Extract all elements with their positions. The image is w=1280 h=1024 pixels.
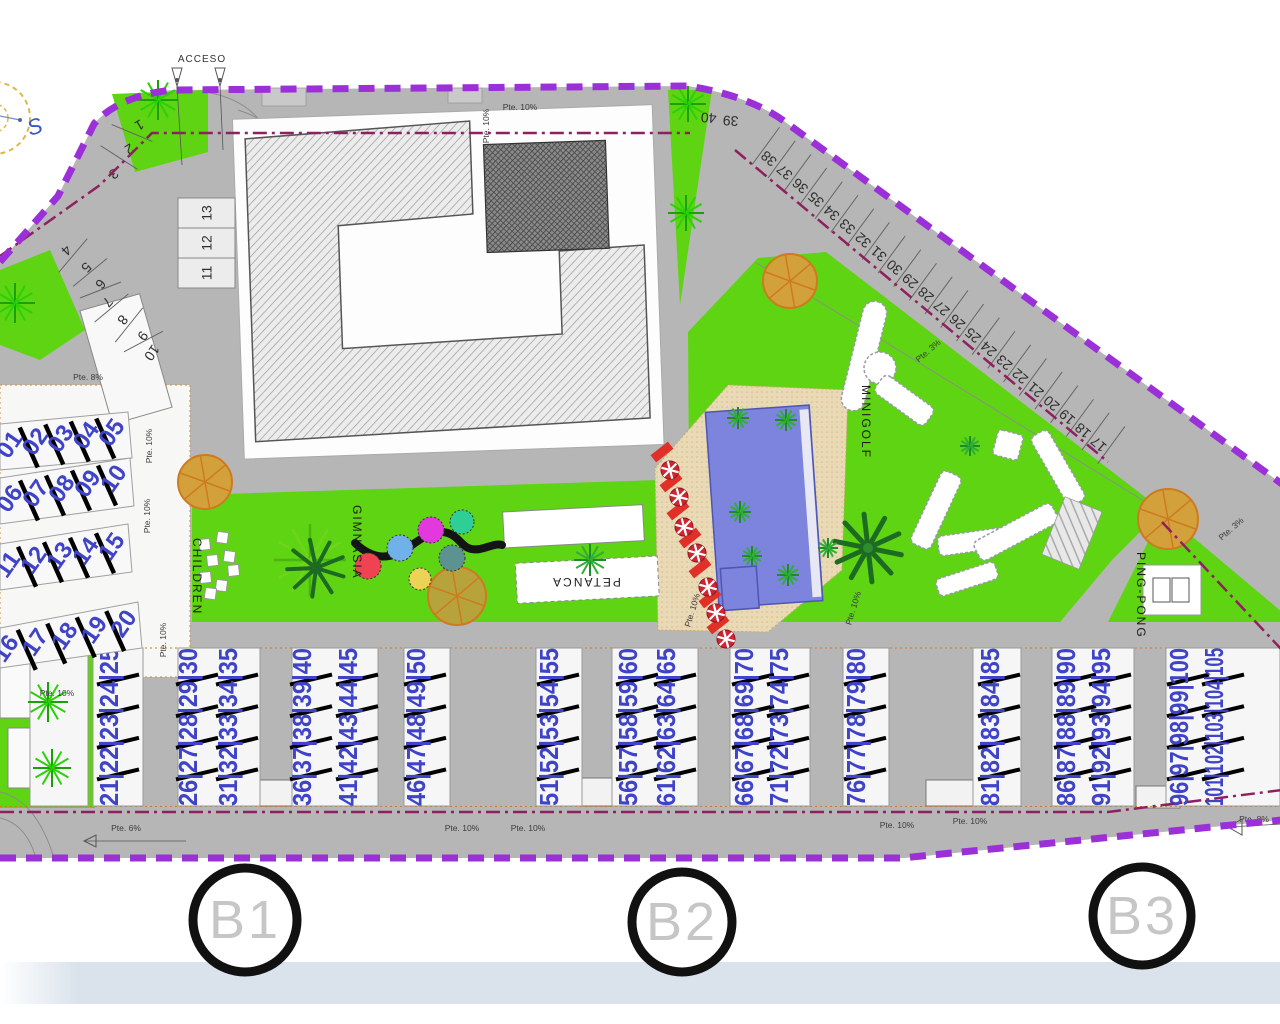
parking-number: 11: [199, 266, 215, 281]
unit-numbers: 56|57|58|59|60: [613, 648, 643, 806]
play-circle: [409, 568, 431, 590]
play-square: [223, 550, 235, 562]
slope-label: Pte. 6%: [111, 823, 141, 833]
petanca-label: PETANCA: [551, 575, 621, 589]
section-markers: B1B2B3: [193, 867, 1191, 972]
site-plan-drawing: 21|22|23|24|2526|27|28|29|3031|32|33|34|…: [0, 0, 1280, 1024]
parking-number: 40: [700, 109, 717, 126]
unit-numbers: 36|37|38|39|40: [287, 648, 317, 806]
gimnasia-label: GIMNASIA: [350, 505, 364, 580]
unit-numbers: 71|72|73|74|75: [764, 648, 794, 806]
parking-number: 12: [199, 235, 215, 251]
left-townhouses: 0102030405060708091011121314151617181920: [0, 412, 143, 670]
play-square: [207, 554, 219, 566]
unit-numbers: 26|27|28|29|30: [173, 648, 203, 806]
bottom-band: [0, 962, 1280, 1004]
pool: [705, 405, 823, 611]
main-building: [232, 105, 664, 459]
ping-pong-label: PING-PONG: [1134, 552, 1148, 639]
slope-label: Pte. 10%: [158, 622, 168, 657]
slope-label: Pte. 10%: [481, 108, 491, 143]
slope-label: Pte. 8%: [73, 372, 103, 382]
unit-numbers: 91|92|93|94|95: [1086, 648, 1116, 806]
block-marker-label: B3: [1106, 886, 1178, 946]
unit-numbers: 31|32|33|34|35: [213, 648, 243, 806]
parking-number: 39: [722, 112, 739, 129]
ping-pong-area: [1143, 565, 1201, 615]
play-circle: [439, 545, 465, 571]
minigolf-label: MINIGOLF: [859, 385, 873, 459]
access-label: ACCESO: [178, 54, 226, 65]
palm-frond: [287, 568, 316, 569]
slope-label: Pte. 10%: [511, 823, 546, 833]
compass: S: [0, 82, 46, 154]
site-plan-page: 21|22|23|24|2526|27|28|29|3031|32|33|34|…: [0, 0, 1280, 1024]
parking-number: 13: [199, 205, 215, 221]
unit-numbers: 41|42|43|44|45: [333, 648, 363, 806]
slope-label: Pte. 10%: [445, 823, 480, 833]
slope-label: Pte. 10%: [953, 816, 988, 826]
block-marker-label: B1: [209, 890, 281, 950]
play-square: [228, 564, 240, 576]
block-marker-label: B2: [646, 892, 718, 952]
unit-numbers: 66|67|68|69|70: [729, 648, 759, 806]
slope-label: Pte. 10%: [40, 688, 75, 698]
play-square: [204, 587, 216, 599]
townhouse-block: [30, 648, 88, 806]
unit-numbers: 76|77|78|79|80: [841, 648, 871, 806]
slope-label: Pte. 10%: [503, 102, 538, 112]
unit-numbers: 81|82|83|84|85: [975, 648, 1005, 806]
play-circle: [450, 510, 474, 534]
play-circle: [418, 517, 444, 543]
unit-numbers: 101|102|103|104|105: [1199, 648, 1229, 806]
play-circle: [387, 535, 413, 561]
unit-numbers: 86|87|88|89|90: [1051, 648, 1081, 806]
unit-numbers: 21|22|23|24|25: [94, 648, 124, 806]
ping-pong-table-icon: [1153, 578, 1170, 602]
slope-label: Pte. 10%: [142, 498, 152, 533]
children-label: CHILDREN: [190, 538, 204, 615]
unit-numbers: 61|62|63|64|65: [651, 648, 681, 806]
compass-south-label: S: [24, 112, 46, 140]
slope-label: Pte. 10%: [880, 820, 915, 830]
palm-center: [863, 543, 873, 553]
play-square: [215, 579, 227, 591]
unit-numbers: 51|52|53|54|55: [534, 648, 564, 806]
slope-label: Pte. 10%: [144, 428, 154, 463]
unit-numbers: 96|97|98|99|100: [1164, 648, 1194, 806]
unit-numbers: 46|47|48|49|50: [401, 648, 431, 806]
play-square: [216, 531, 228, 543]
bottom-townhouses: 21|22|23|24|2526|27|28|29|3031|32|33|34|…: [30, 648, 1280, 806]
